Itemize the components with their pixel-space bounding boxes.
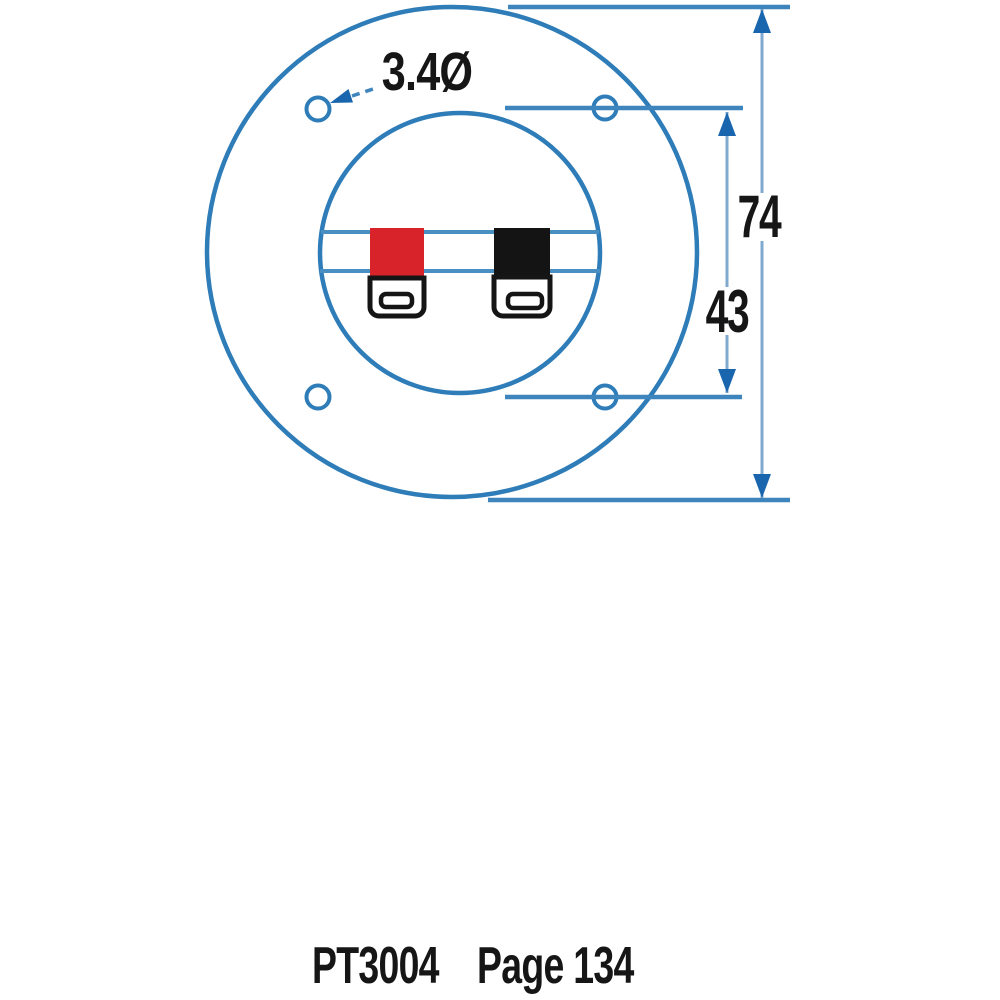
footer: PT3004 Page 134 xyxy=(312,936,634,995)
hole-diameter-callout: 3.4Ø xyxy=(330,43,472,103)
dim-43-label: 43 xyxy=(706,278,749,345)
page-reference-label: Page 134 xyxy=(477,936,634,995)
dim-43-arrow-down xyxy=(718,369,736,393)
terminal-positive xyxy=(370,228,424,316)
mounting-hole-top-left xyxy=(307,98,330,121)
dim-74-arrow-up xyxy=(753,9,771,33)
mounting-hole-bottom-left xyxy=(307,386,330,409)
hole-diameter-label: 3.4Ø xyxy=(382,43,472,103)
terminal-negative-button xyxy=(494,228,550,277)
inner-cutout-circle xyxy=(320,113,600,393)
dim-74-label: 74 xyxy=(738,183,782,250)
terminal-plate-diagram: 74 43 3.4Ø PT3004 Page 134 xyxy=(0,0,1000,1000)
terminal-positive-slot xyxy=(381,294,412,307)
dim-43-arrow-up xyxy=(718,112,736,136)
page: 74 43 3.4Ø PT3004 Page 134 xyxy=(0,0,1000,1000)
terminal-negative-slot xyxy=(508,294,542,308)
callout-arrow xyxy=(330,89,353,103)
terminal-negative xyxy=(494,228,550,316)
dim-74-arrow-down xyxy=(753,474,771,498)
part-number-label: PT3004 xyxy=(312,936,439,995)
terminal-positive-button xyxy=(370,228,424,278)
callout-leader-line xyxy=(352,88,376,96)
